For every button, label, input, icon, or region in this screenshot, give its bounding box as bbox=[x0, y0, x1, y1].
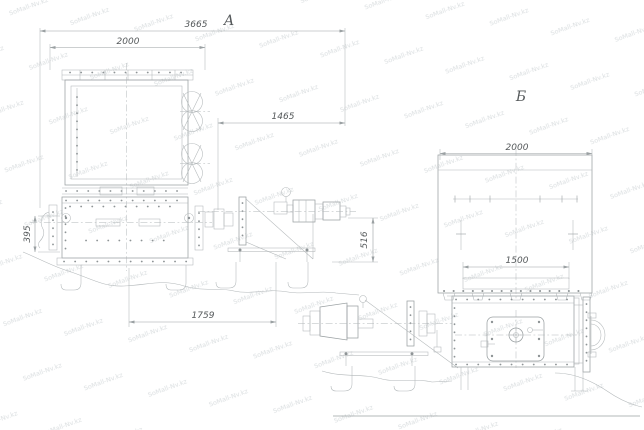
svg-text:516: 516 bbox=[360, 231, 370, 248]
technical-drawing: SoMall-Nv.kz SoMall-Nv.kz А bbox=[0, 0, 644, 430]
svg-text:2000: 2000 bbox=[117, 37, 140, 47]
watermark-layer bbox=[0, 0, 644, 430]
svg-text:1500: 1500 bbox=[506, 256, 529, 266]
svg-text:2000: 2000 bbox=[506, 143, 529, 153]
view-b-label: Б bbox=[515, 89, 526, 105]
svg-text:3665: 3665 bbox=[185, 20, 208, 30]
svg-text:395: 395 bbox=[23, 225, 33, 242]
svg-text:1759: 1759 bbox=[192, 311, 215, 321]
svg-text:1465: 1465 bbox=[272, 112, 295, 122]
view-a-label: А bbox=[223, 13, 235, 29]
